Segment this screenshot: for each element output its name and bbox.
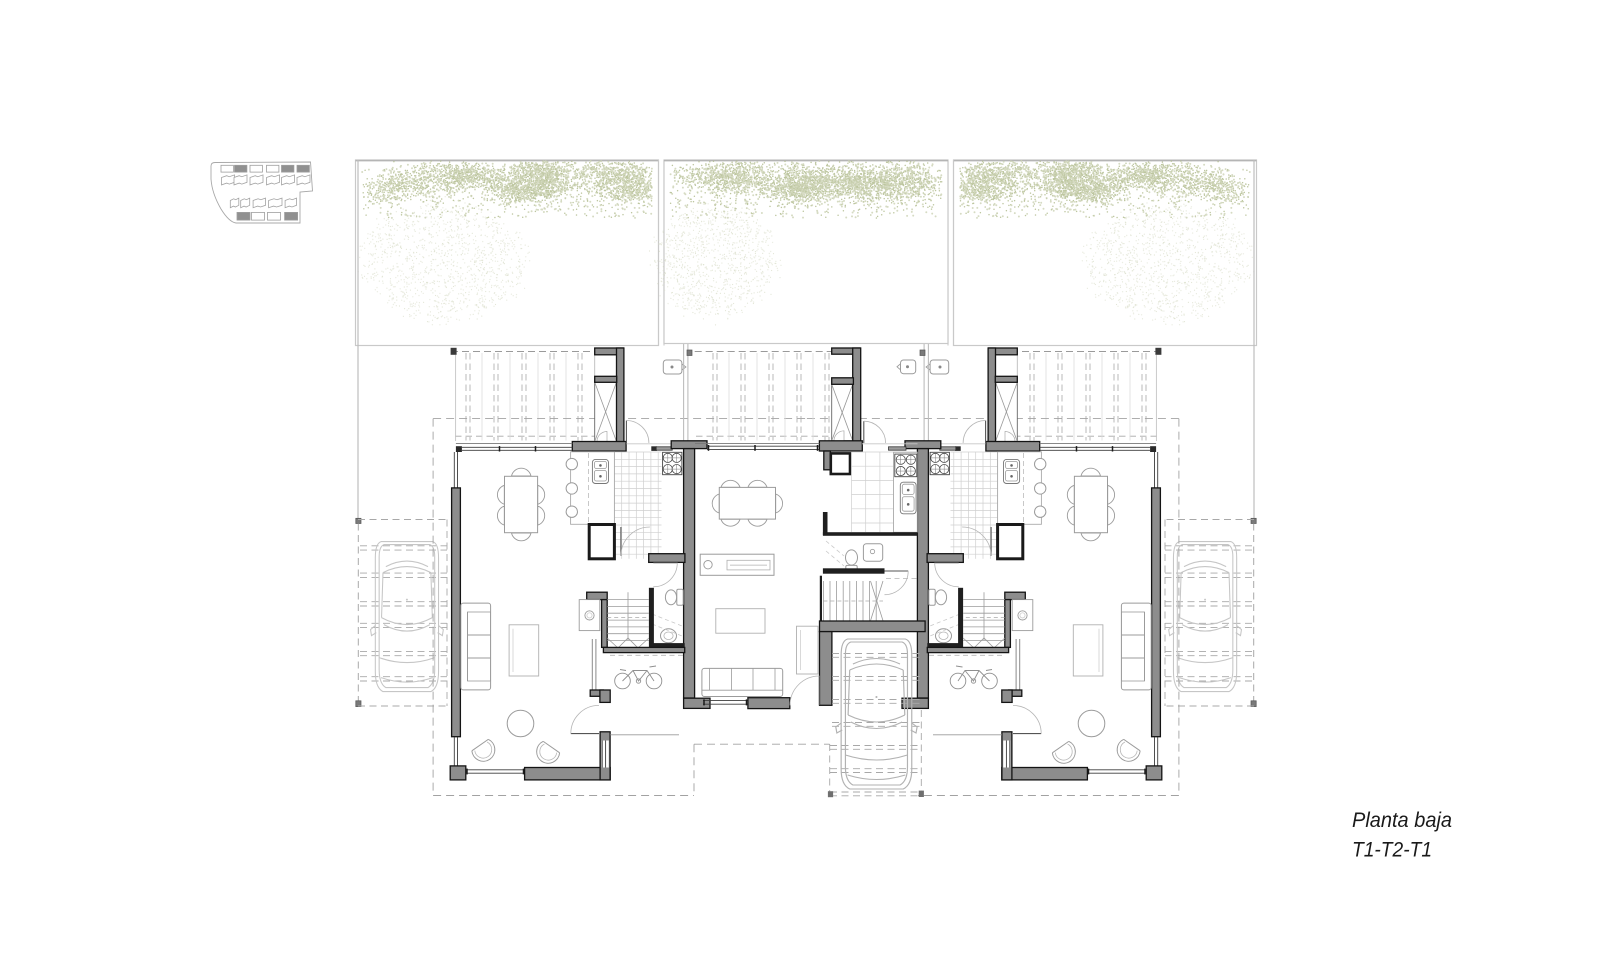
svg-text:Planta baja: Planta baja	[1352, 808, 1452, 832]
svg-text:T1-T2-T1: T1-T2-T1	[1352, 838, 1432, 862]
